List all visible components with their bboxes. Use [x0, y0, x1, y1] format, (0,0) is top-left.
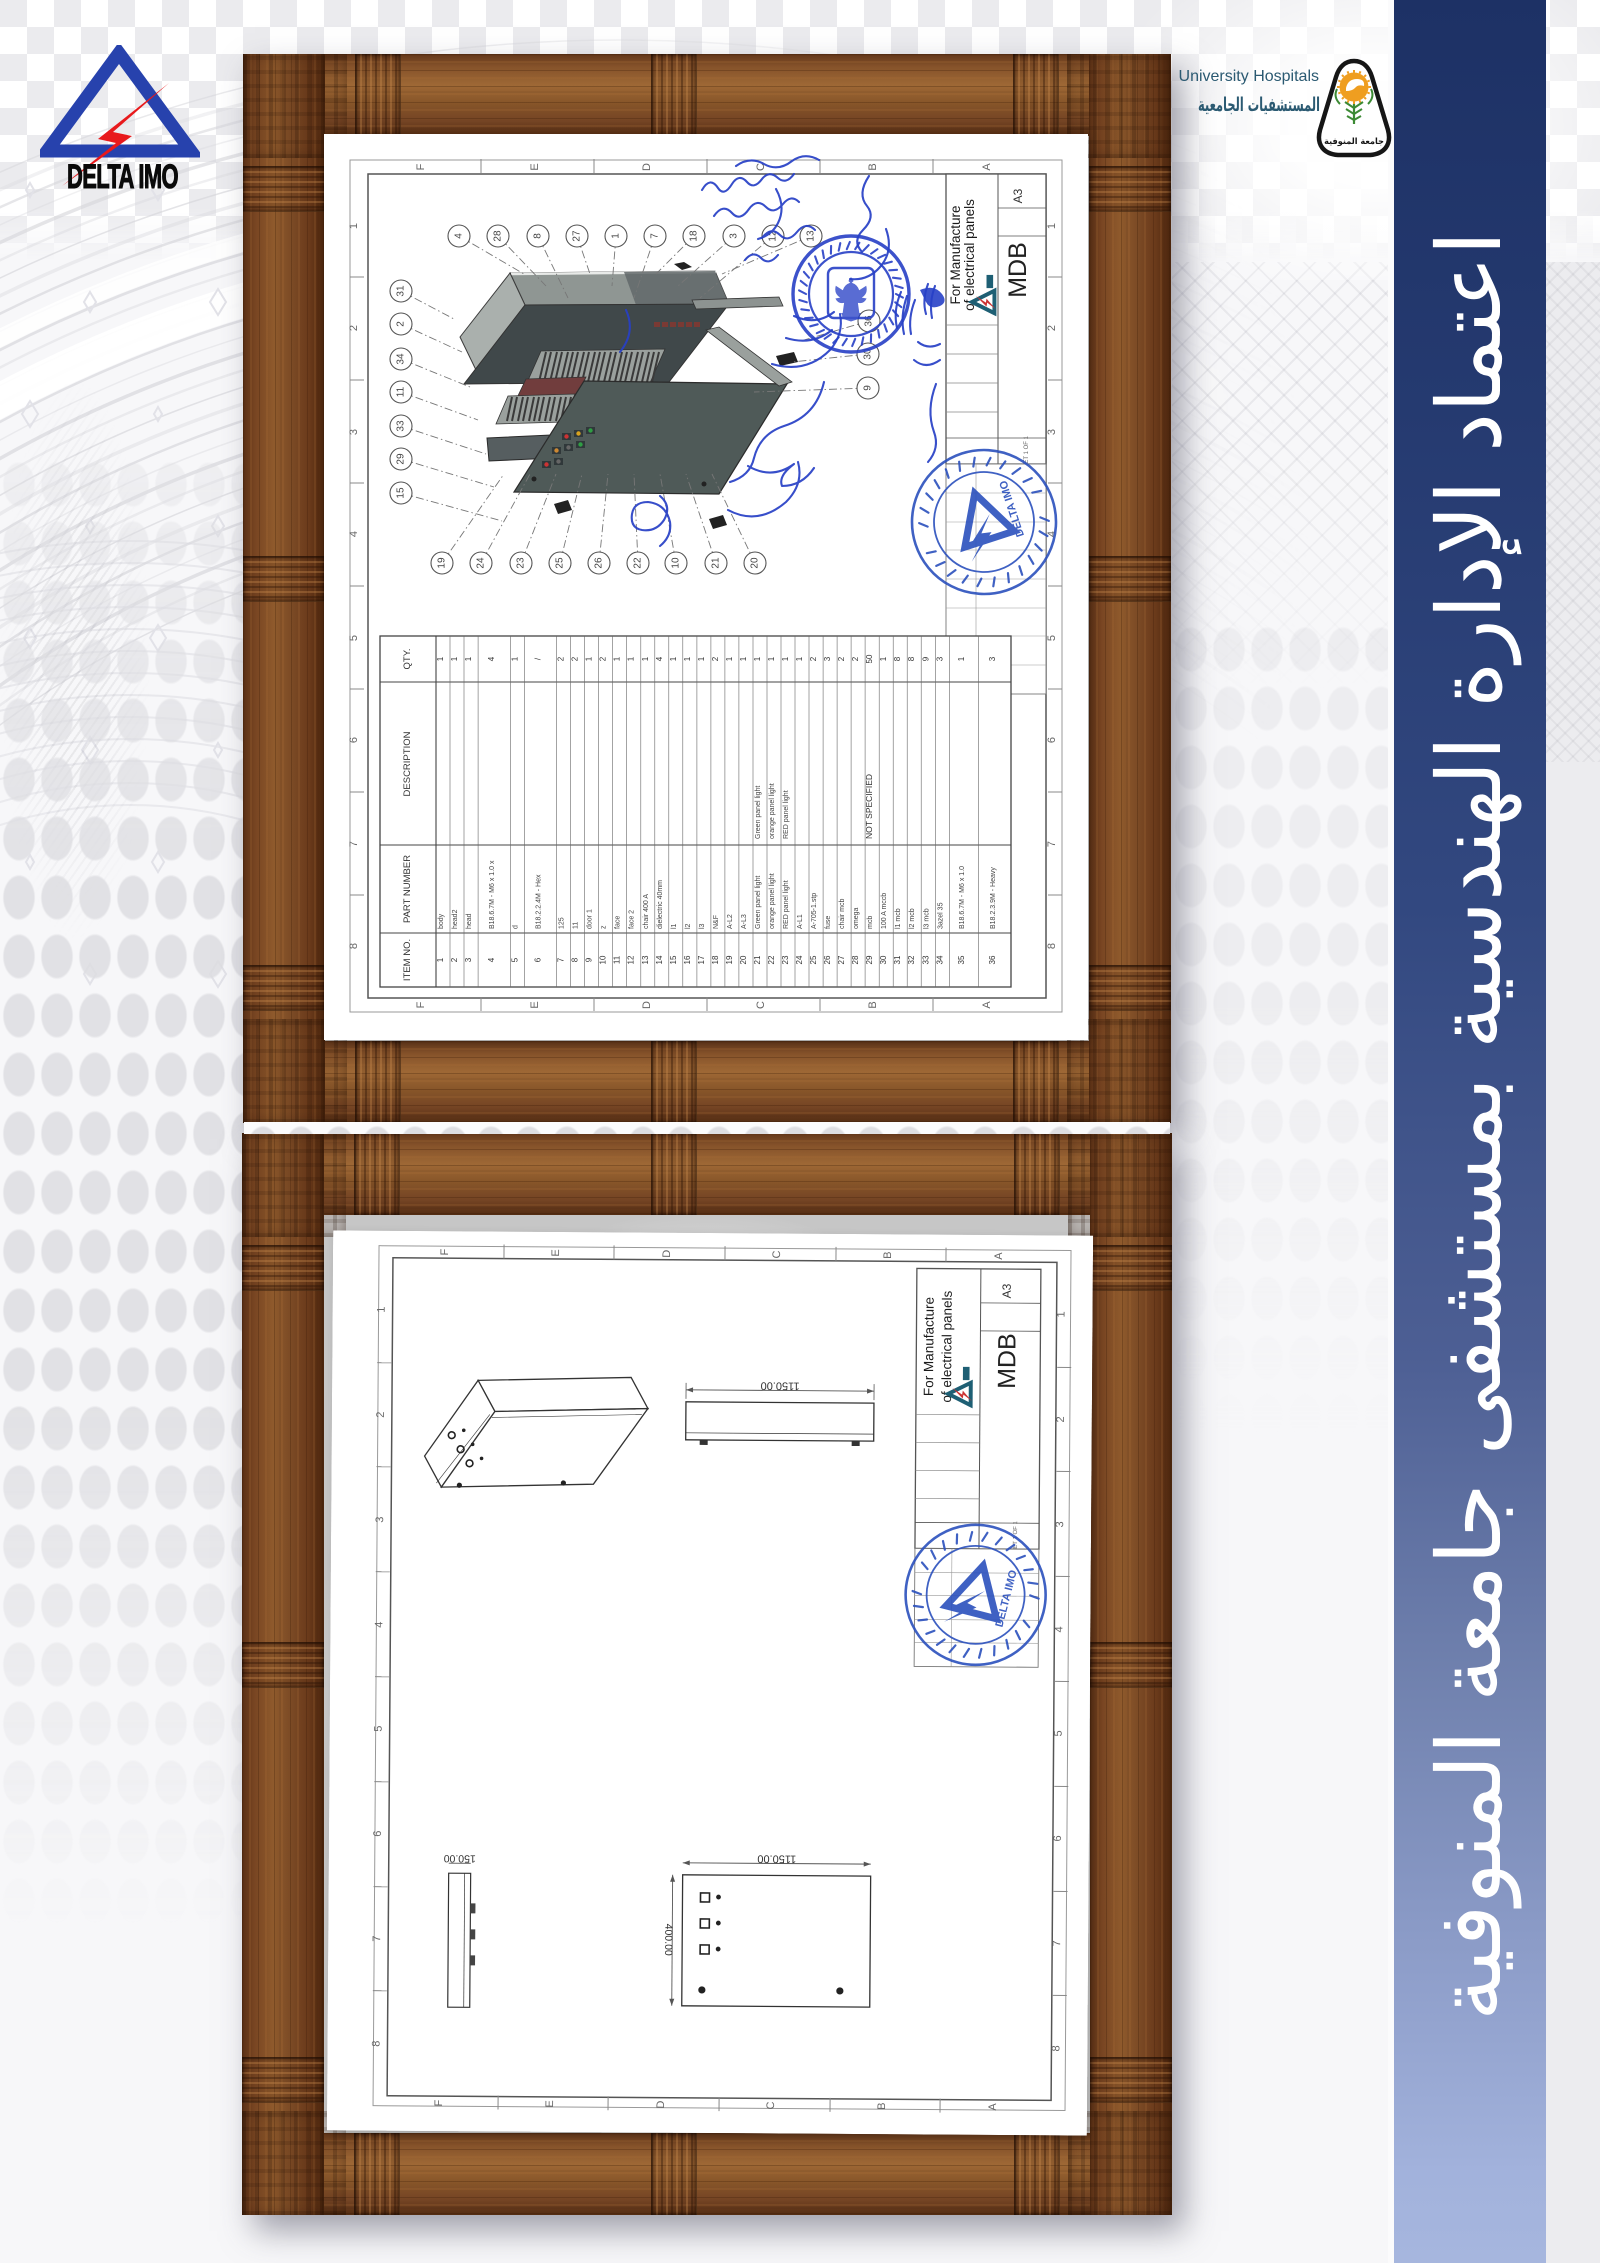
- svg-text:D: D: [641, 1001, 653, 1009]
- svg-text:l3: l3: [699, 923, 706, 929]
- svg-text:head: head: [466, 913, 473, 929]
- svg-text:body: body: [438, 913, 445, 929]
- svg-text:8: 8: [571, 957, 580, 962]
- svg-text:125: 125: [559, 917, 566, 929]
- svg-text:150.00: 150.00: [444, 1852, 476, 1864]
- svg-text:2: 2: [851, 656, 860, 661]
- svg-text:18: 18: [689, 230, 700, 242]
- svg-text:chair 400 A: chair 400 A: [643, 894, 650, 929]
- svg-text:A3: A3: [1011, 188, 1025, 203]
- svg-text:2: 2: [711, 656, 720, 661]
- svg-text:7: 7: [1046, 841, 1058, 847]
- svg-text:F: F: [439, 1248, 451, 1255]
- svg-text:C: C: [771, 1250, 783, 1258]
- svg-text:face 2: face 2: [629, 910, 636, 929]
- svg-text:l1 mcb: l1 mcb: [895, 908, 902, 929]
- svg-text:chair mcb: chair mcb: [839, 899, 846, 929]
- svg-text:face: face: [615, 916, 622, 929]
- svg-text:2: 2: [557, 656, 566, 661]
- svg-text:E: E: [529, 163, 541, 170]
- svg-text:2: 2: [450, 957, 459, 962]
- svg-text:F: F: [415, 163, 427, 170]
- svg-text:35: 35: [957, 955, 966, 964]
- svg-text:F: F: [415, 1001, 427, 1008]
- svg-text:For Manufacture: For Manufacture: [948, 205, 963, 304]
- svg-text:D: D: [655, 2101, 667, 2109]
- svg-text:1150.00: 1150.00: [761, 1379, 800, 1391]
- svg-text:4: 4: [454, 233, 465, 239]
- svg-text:10: 10: [671, 557, 682, 569]
- svg-text:A: A: [987, 2103, 999, 2111]
- svg-text:100 A mccb: 100 A mccb: [881, 893, 888, 929]
- svg-text:A-L3: A-L3: [741, 914, 748, 929]
- svg-text:24: 24: [476, 557, 487, 569]
- svg-text:25: 25: [555, 557, 566, 569]
- svg-text:3: 3: [1046, 429, 1058, 435]
- svg-text:6: 6: [348, 737, 360, 743]
- svg-text:B18.6.7M - M6 x 1.0 x: B18.6.7M - M6 x 1.0 x: [489, 860, 496, 929]
- svg-text:3: 3: [1054, 1521, 1066, 1527]
- svg-text:3: 3: [935, 656, 944, 661]
- svg-text:B: B: [867, 1001, 879, 1008]
- svg-text:19: 19: [725, 955, 734, 964]
- svg-text:27: 27: [572, 230, 583, 242]
- svg-text:7: 7: [557, 957, 566, 962]
- svg-text:B: B: [867, 163, 879, 170]
- svg-text:1: 1: [641, 656, 650, 661]
- svg-text:1: 1: [436, 656, 445, 661]
- svg-text:30: 30: [879, 955, 888, 964]
- svg-text:21: 21: [711, 557, 722, 569]
- svg-text:9: 9: [921, 656, 930, 661]
- svg-text:23: 23: [781, 955, 790, 964]
- svg-text:3: 3: [729, 233, 740, 239]
- svg-text:28: 28: [851, 955, 860, 964]
- svg-text:8: 8: [907, 656, 916, 661]
- svg-text:7: 7: [1051, 1940, 1063, 1946]
- svg-text:24: 24: [795, 955, 804, 964]
- svg-text:8: 8: [1046, 943, 1058, 949]
- svg-text:2: 2: [809, 656, 818, 661]
- svg-text:E: E: [544, 2100, 556, 2107]
- svg-text:Green panel light: Green panel light: [755, 786, 762, 839]
- svg-text:4: 4: [373, 1622, 385, 1628]
- svg-text:1: 1: [1046, 223, 1058, 229]
- svg-text:28: 28: [493, 230, 504, 242]
- svg-text:3: 3: [374, 1517, 386, 1523]
- svg-text:19: 19: [437, 557, 448, 569]
- svg-text:fuse: fuse: [825, 916, 832, 929]
- svg-text:B18.2.3.9M - Heavy: B18.2.3.9M - Heavy: [990, 867, 997, 929]
- svg-text:11: 11: [396, 386, 407, 397]
- svg-text:12: 12: [627, 955, 636, 964]
- svg-text:14: 14: [655, 955, 664, 964]
- svg-text:33: 33: [396, 420, 407, 432]
- svg-text:16: 16: [683, 955, 692, 964]
- svg-text:RED panel light: RED panel light: [783, 880, 790, 929]
- svg-text:B18.6.7M - M6 x 1.0: B18.6.7M - M6 x 1.0: [959, 866, 966, 929]
- svg-text:E: E: [529, 1001, 541, 1008]
- svg-text:15: 15: [396, 487, 407, 499]
- svg-text:8: 8: [533, 233, 544, 239]
- svg-text:8: 8: [348, 943, 360, 949]
- svg-text:1: 1: [627, 656, 636, 661]
- svg-text:1: 1: [669, 656, 678, 661]
- svg-text:6: 6: [372, 1831, 384, 1837]
- svg-text:MDB: MDB: [1004, 242, 1032, 298]
- svg-text:20: 20: [750, 557, 761, 569]
- svg-text:QTY.: QTY.: [402, 649, 413, 670]
- svg-text:1: 1: [725, 656, 734, 661]
- svg-text:d: d: [512, 925, 519, 929]
- svg-text:A3: A3: [1000, 1283, 1014, 1298]
- svg-text:2: 2: [348, 325, 360, 331]
- svg-text:dielectric 40mm: dielectric 40mm: [657, 880, 664, 929]
- svg-text:z: z: [601, 925, 608, 929]
- svg-text:20: 20: [739, 955, 748, 964]
- svg-text:7: 7: [650, 233, 661, 239]
- svg-text:1: 1: [697, 656, 706, 661]
- svg-text:7: 7: [348, 841, 360, 847]
- svg-text:3azel 35: 3azel 35: [937, 902, 944, 929]
- svg-text:15: 15: [669, 955, 678, 964]
- svg-text:1: 1: [611, 233, 622, 239]
- svg-text:34: 34: [935, 955, 944, 964]
- svg-text:1: 1: [613, 656, 622, 661]
- svg-text:8: 8: [1050, 2045, 1062, 2051]
- svg-text:NOT SPECIFIED: NOT SPECIFIED: [864, 774, 874, 839]
- svg-text:l2: l2: [685, 923, 692, 929]
- svg-text:25: 25: [809, 955, 818, 964]
- svg-text:23: 23: [516, 557, 527, 569]
- svg-text:31: 31: [893, 955, 902, 964]
- svg-text:3: 3: [348, 429, 360, 435]
- svg-text:2: 2: [837, 656, 846, 661]
- svg-text:3: 3: [464, 957, 473, 962]
- svg-text:1: 1: [683, 656, 692, 661]
- svg-text:5: 5: [1053, 1730, 1065, 1736]
- svg-text:PART NUMBER: PART NUMBER: [402, 855, 413, 923]
- svg-text:A: A: [981, 163, 993, 171]
- svg-text:2: 2: [1046, 325, 1058, 331]
- svg-text:26: 26: [823, 955, 832, 964]
- svg-text:5: 5: [373, 1726, 385, 1732]
- svg-text:door 1: door 1: [587, 909, 594, 929]
- svg-text:3: 3: [988, 656, 997, 661]
- svg-text:l3 mcb: l3 mcb: [923, 908, 930, 929]
- svg-text:36: 36: [988, 955, 997, 964]
- svg-text:2: 2: [599, 656, 608, 661]
- svg-text:D: D: [661, 1250, 673, 1258]
- svg-text:5: 5: [348, 635, 360, 641]
- svg-text:N&F: N&F: [713, 915, 720, 929]
- svg-text:10: 10: [599, 955, 608, 964]
- svg-text:2: 2: [396, 321, 407, 327]
- svg-text:B: B: [882, 1252, 894, 1259]
- svg-text:13: 13: [641, 955, 650, 964]
- svg-text:29: 29: [865, 955, 874, 964]
- svg-text:6: 6: [1046, 737, 1058, 743]
- svg-text:l2 mcb: l2 mcb: [909, 908, 916, 929]
- svg-text:E: E: [550, 1249, 562, 1256]
- svg-text:1: 1: [781, 656, 790, 661]
- svg-text:21: 21: [753, 955, 762, 964]
- svg-text:of electrical panels: of electrical panels: [962, 199, 977, 311]
- svg-text:l1: l1: [671, 923, 678, 929]
- svg-text:1: 1: [767, 656, 776, 661]
- svg-text:1: 1: [753, 656, 762, 661]
- svg-text:26: 26: [594, 557, 605, 569]
- svg-text:A: A: [993, 1252, 1005, 1260]
- svg-text:ITEM NO.: ITEM NO.: [402, 939, 413, 981]
- svg-text:1: 1: [585, 656, 594, 661]
- svg-text:C: C: [755, 1001, 767, 1009]
- svg-text:8: 8: [893, 656, 902, 661]
- svg-text:of electrical panels: of electrical panels: [939, 1290, 955, 1402]
- svg-text:3: 3: [823, 656, 832, 661]
- svg-text:1: 1: [879, 656, 888, 661]
- svg-text:omega: omega: [853, 907, 860, 929]
- svg-text:A-L1: A-L1: [797, 914, 804, 929]
- svg-text:RED panel light: RED panel light: [783, 790, 790, 839]
- svg-text:400.00: 400.00: [662, 1924, 674, 1956]
- svg-text:33: 33: [921, 955, 930, 964]
- svg-text:1: 1: [348, 223, 360, 229]
- svg-text:22: 22: [767, 955, 776, 964]
- svg-text:1: 1: [464, 656, 473, 661]
- svg-text:31: 31: [396, 285, 407, 297]
- svg-text:4: 4: [348, 531, 360, 537]
- svg-text:6: 6: [534, 957, 543, 962]
- svg-text:18: 18: [711, 955, 720, 964]
- svg-text:29: 29: [396, 453, 407, 465]
- svg-text:5: 5: [510, 957, 519, 962]
- svg-text:1150.00: 1150.00: [757, 1852, 796, 1864]
- svg-text:B: B: [876, 2102, 888, 2109]
- svg-text:D: D: [641, 163, 653, 171]
- svg-text:DESCRIPTION: DESCRIPTION: [402, 731, 413, 796]
- svg-text:5: 5: [1046, 635, 1058, 641]
- svg-text:1: 1: [450, 656, 459, 661]
- svg-text:6: 6: [1052, 1835, 1064, 1841]
- svg-text:1: 1: [957, 656, 966, 661]
- svg-text:17: 17: [697, 955, 706, 964]
- svg-text:2: 2: [1055, 1416, 1067, 1422]
- svg-text:B18.2.2.4M - Hex: B18.2.2.4M - Hex: [536, 874, 543, 929]
- svg-text:MDB: MDB: [993, 1333, 1021, 1389]
- svg-text:4: 4: [487, 656, 496, 661]
- svg-text:C: C: [765, 2101, 777, 2109]
- svg-text:mcb: mcb: [867, 916, 874, 929]
- svg-text:27: 27: [837, 955, 846, 964]
- svg-text:4: 4: [1053, 1626, 1065, 1632]
- svg-text:1: 1: [376, 1307, 388, 1313]
- svg-text:9: 9: [863, 385, 874, 391]
- svg-text:F: F: [433, 2099, 445, 2106]
- svg-text:32: 32: [907, 955, 916, 964]
- svg-text:4: 4: [655, 656, 664, 661]
- svg-text:A: A: [981, 1001, 993, 1009]
- svg-text:50: 50: [865, 654, 874, 663]
- svg-text:4: 4: [487, 957, 496, 962]
- svg-text:orange panel light: orange panel light: [769, 873, 776, 929]
- svg-text:34: 34: [396, 353, 407, 365]
- svg-text:2: 2: [375, 1412, 387, 1418]
- svg-text:orange panel light: orange panel light: [769, 783, 776, 839]
- svg-text:11: 11: [573, 922, 580, 929]
- svg-text:1: 1: [739, 656, 748, 661]
- svg-text:A-705-1.stp: A-705-1.stp: [811, 893, 818, 929]
- svg-text:1: 1: [1056, 1311, 1068, 1317]
- svg-text:8: 8: [370, 2041, 382, 2047]
- svg-text:11: 11: [613, 955, 622, 964]
- svg-text:1: 1: [510, 656, 519, 661]
- svg-text:Green panel light: Green panel light: [755, 876, 762, 929]
- svg-text:A-L2: A-L2: [727, 914, 734, 929]
- svg-text:For Manufacture: For Manufacture: [921, 1297, 937, 1396]
- svg-text:DELTA IMO: DELTA IMO: [67, 158, 178, 196]
- svg-text:7: 7: [371, 1936, 383, 1942]
- svg-text:9: 9: [585, 957, 594, 962]
- svg-text:1: 1: [436, 957, 445, 962]
- svg-text:head2: head2: [452, 909, 459, 929]
- svg-text:13: 13: [806, 230, 817, 242]
- svg-text:1: 1: [795, 656, 804, 661]
- svg-text:22: 22: [633, 557, 644, 569]
- svg-text:2: 2: [571, 656, 580, 661]
